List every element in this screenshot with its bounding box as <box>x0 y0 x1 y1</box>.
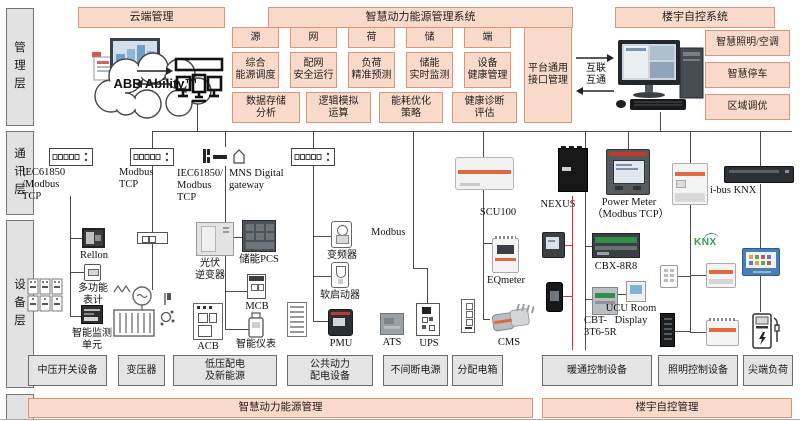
grid-energy-optimize: 能耗优化 策略 <box>379 92 443 123</box>
cms-icon <box>489 303 534 334</box>
acb-icon <box>193 303 223 340</box>
grid-load-forecast: 负荷 精准预测 <box>348 52 395 88</box>
controller-device-icon <box>546 282 563 312</box>
connector-line <box>225 329 249 330</box>
connector-line <box>760 131 761 166</box>
protocol-label-mns-gateway: MNS Digital gateway <box>229 168 293 192</box>
connector-line <box>70 238 82 239</box>
knx-module-icon <box>706 320 739 346</box>
grid-source: 源 <box>232 27 279 48</box>
eqmeter-icon <box>492 238 519 273</box>
monitor-unit-icon <box>81 305 103 324</box>
multifunction-meter-label: 多功能 表计 <box>72 283 114 306</box>
grid-health-diagnosis: 健康诊断 评估 <box>452 92 517 123</box>
power-meter-icon <box>606 149 650 195</box>
computer-drop-line <box>660 112 661 131</box>
io-panel-icon <box>287 302 307 337</box>
smart-meter-icon <box>247 312 265 339</box>
red-connector-line <box>564 245 572 246</box>
pv-inverter-label: 光伏 逆变器 <box>188 258 232 281</box>
connector-line <box>225 131 226 147</box>
ats-icon <box>380 313 404 335</box>
rellon-icon <box>82 228 105 248</box>
soft-starter-label: 软启动器 <box>312 290 368 302</box>
red-connector-line <box>572 196 573 350</box>
connector-line <box>225 291 247 292</box>
connector-line <box>313 236 331 237</box>
switch-icon <box>49 148 93 166</box>
ups-label: UPS <box>416 338 442 350</box>
category-peak-load: 尖端负荷 <box>743 355 793 386</box>
grid-device-health: 设备 健康管理 <box>464 52 511 88</box>
connector-line <box>70 272 84 273</box>
connector-line <box>628 131 629 150</box>
category-ups: 不间断电源 <box>383 355 448 386</box>
connector-line <box>483 131 484 158</box>
cbx-label: CBX-8R8 <box>588 261 644 273</box>
grid-network: 网 <box>290 27 337 48</box>
grid-storage-monitor: 储能 实时监测 <box>406 52 453 88</box>
category-public-power: 公共动力 配电设备 <box>287 355 373 386</box>
eqmeter-label: EQmeter <box>484 275 528 287</box>
connector-line <box>70 316 81 317</box>
connector-line <box>70 196 71 317</box>
building-lighting-hvac-box: 智慧照明/空调 <box>705 30 790 56</box>
connector-line <box>413 268 428 269</box>
grid-energy-dispatch: 综合 能源调度 <box>232 52 279 88</box>
black-panel-icon <box>660 313 675 347</box>
pmu-icon <box>328 309 353 336</box>
connector-line <box>313 276 331 277</box>
building-parking-box: 智慧停车 <box>705 62 790 88</box>
main-bus-line <box>152 131 792 132</box>
smart-meter-label: 智能仪表 <box>233 339 279 351</box>
connector-line <box>413 131 414 268</box>
inline-meter-icon <box>137 232 168 244</box>
ibus-router-icon <box>724 166 794 183</box>
grid-logic-simulation: 逻辑模拟 运算 <box>306 92 371 123</box>
multifunction-meter-icon <box>84 264 101 281</box>
server-icon <box>173 56 225 104</box>
nexus-label: NEXUS <box>535 199 581 211</box>
connector-line <box>313 131 314 148</box>
server-drop-line <box>197 104 198 131</box>
category-lv-distribution: 低压配电 及新能源 <box>173 355 277 386</box>
meter-device-icon <box>542 232 565 258</box>
transformer-icon <box>110 284 162 340</box>
vfd-label: 变频器 <box>320 250 364 262</box>
category-mv-switchgear: 中压开关设备 <box>28 355 107 386</box>
pmu-label: PMU <box>327 338 355 350</box>
connector-line <box>152 131 153 148</box>
band-energy-management: 智慧动力能源管理 <box>28 398 533 418</box>
interconnect-label: 互联 互通 <box>578 63 614 86</box>
ats-label: ATS <box>379 337 405 349</box>
header-cloud-management: 云端管理 <box>78 7 225 28</box>
scu100-label: SCU100 <box>470 207 526 219</box>
layer-label-management: 管 理 层 <box>14 40 26 93</box>
soft-starter-icon <box>331 262 349 288</box>
connector-line <box>690 131 691 163</box>
layer-bar-management: 管 理 层 <box>6 8 34 126</box>
ev-charger-icon <box>750 312 782 352</box>
touch-panel-icon <box>742 248 780 276</box>
category-distribution-box: 分配电箱 <box>452 355 503 386</box>
grid-grid-safety: 配网 安全运行 <box>290 52 337 88</box>
connector-line <box>760 276 761 312</box>
connector-line <box>690 205 691 332</box>
switch-icon <box>291 148 335 166</box>
gateway-icon <box>201 147 249 166</box>
connector-line <box>234 237 242 238</box>
cloud-to-server-arrow-icon <box>137 66 173 76</box>
platform-interface-box: 平台通用 接口管理 <box>524 27 572 123</box>
disconnector-icon <box>157 291 179 329</box>
desktop-computer-icon <box>614 38 712 114</box>
knx-logo: KNX <box>694 237 717 248</box>
knx-module-icon <box>706 263 736 288</box>
scu100-icon <box>455 157 514 190</box>
architecture-diagram: 管 理 层 通 讯 层 设 备 层 云端管理 智慧动力能源管理系统 楼宇自控系统 <box>0 0 800 421</box>
mcb-icon <box>247 274 266 299</box>
connector-line <box>690 332 706 333</box>
building-zone-tuning-box: 区域调优 <box>705 94 790 120</box>
pv-inverter-icon <box>196 222 234 256</box>
red-connector-line <box>562 296 572 297</box>
ucu-display-icon <box>626 281 646 302</box>
nexus-icon <box>558 148 588 192</box>
cbx-icon <box>592 233 640 258</box>
header-energy-system: 智慧动力能源管理系统 <box>268 7 573 28</box>
header-building-system: 楼宇自控系统 <box>615 7 775 28</box>
switch-icon <box>130 148 174 166</box>
connector-line <box>690 275 706 276</box>
cbt-label: CBT- 3T6-5R <box>584 315 620 339</box>
knx-arc-icon <box>702 232 719 243</box>
pcs-icon <box>242 220 276 252</box>
knx-actuator-icon <box>672 163 708 205</box>
connector-line <box>427 268 428 303</box>
acb-label: ACB <box>194 341 222 353</box>
power-meter-label: Power Meter （Modbus TCP） <box>592 197 666 221</box>
protocol-label-iec61850-modbus-2: IEC61850/ Modbus TCP <box>177 168 223 204</box>
grid-storage: 储 <box>406 27 453 48</box>
protocol-label-modbus-tcp: Modbus TCP <box>119 167 169 191</box>
grid-data-storage: 数据存储 分析 <box>232 92 300 123</box>
rellon-label: Rellon <box>74 250 114 262</box>
strip-device-icon <box>461 299 475 333</box>
band-building-management: 楼宇自控管理 <box>542 398 792 418</box>
switchgear-icon <box>27 278 63 312</box>
cms-label: CMS <box>493 337 525 349</box>
interconnect-right-arrow-icon <box>576 53 614 63</box>
ups-icon <box>416 303 440 336</box>
connector-line <box>313 321 329 322</box>
ibus-knx-label: i-bus KNX <box>710 185 768 197</box>
category-transformer: 变压器 <box>118 355 165 386</box>
interconnect-left-arrow-icon <box>576 86 614 96</box>
pcs-label: 储能PCS <box>236 254 282 266</box>
category-lighting-control: 照明控制设备 <box>658 355 738 386</box>
keypad-icon <box>660 265 678 288</box>
layer-label-device: 设 备 层 <box>14 277 26 330</box>
vfd-icon <box>331 221 352 248</box>
category-hvac-control: 暖通控制设备 <box>542 355 652 386</box>
protocol-label-modbus: Modbus <box>371 227 415 239</box>
connector-line <box>618 294 626 295</box>
grid-load: 荷 <box>348 27 395 48</box>
grid-terminal: 端 <box>464 27 511 48</box>
frame-bottom-line <box>0 419 800 420</box>
server-to-cloud-arrow-icon <box>135 79 171 89</box>
connector-line <box>678 276 690 277</box>
connector-line <box>675 331 690 332</box>
